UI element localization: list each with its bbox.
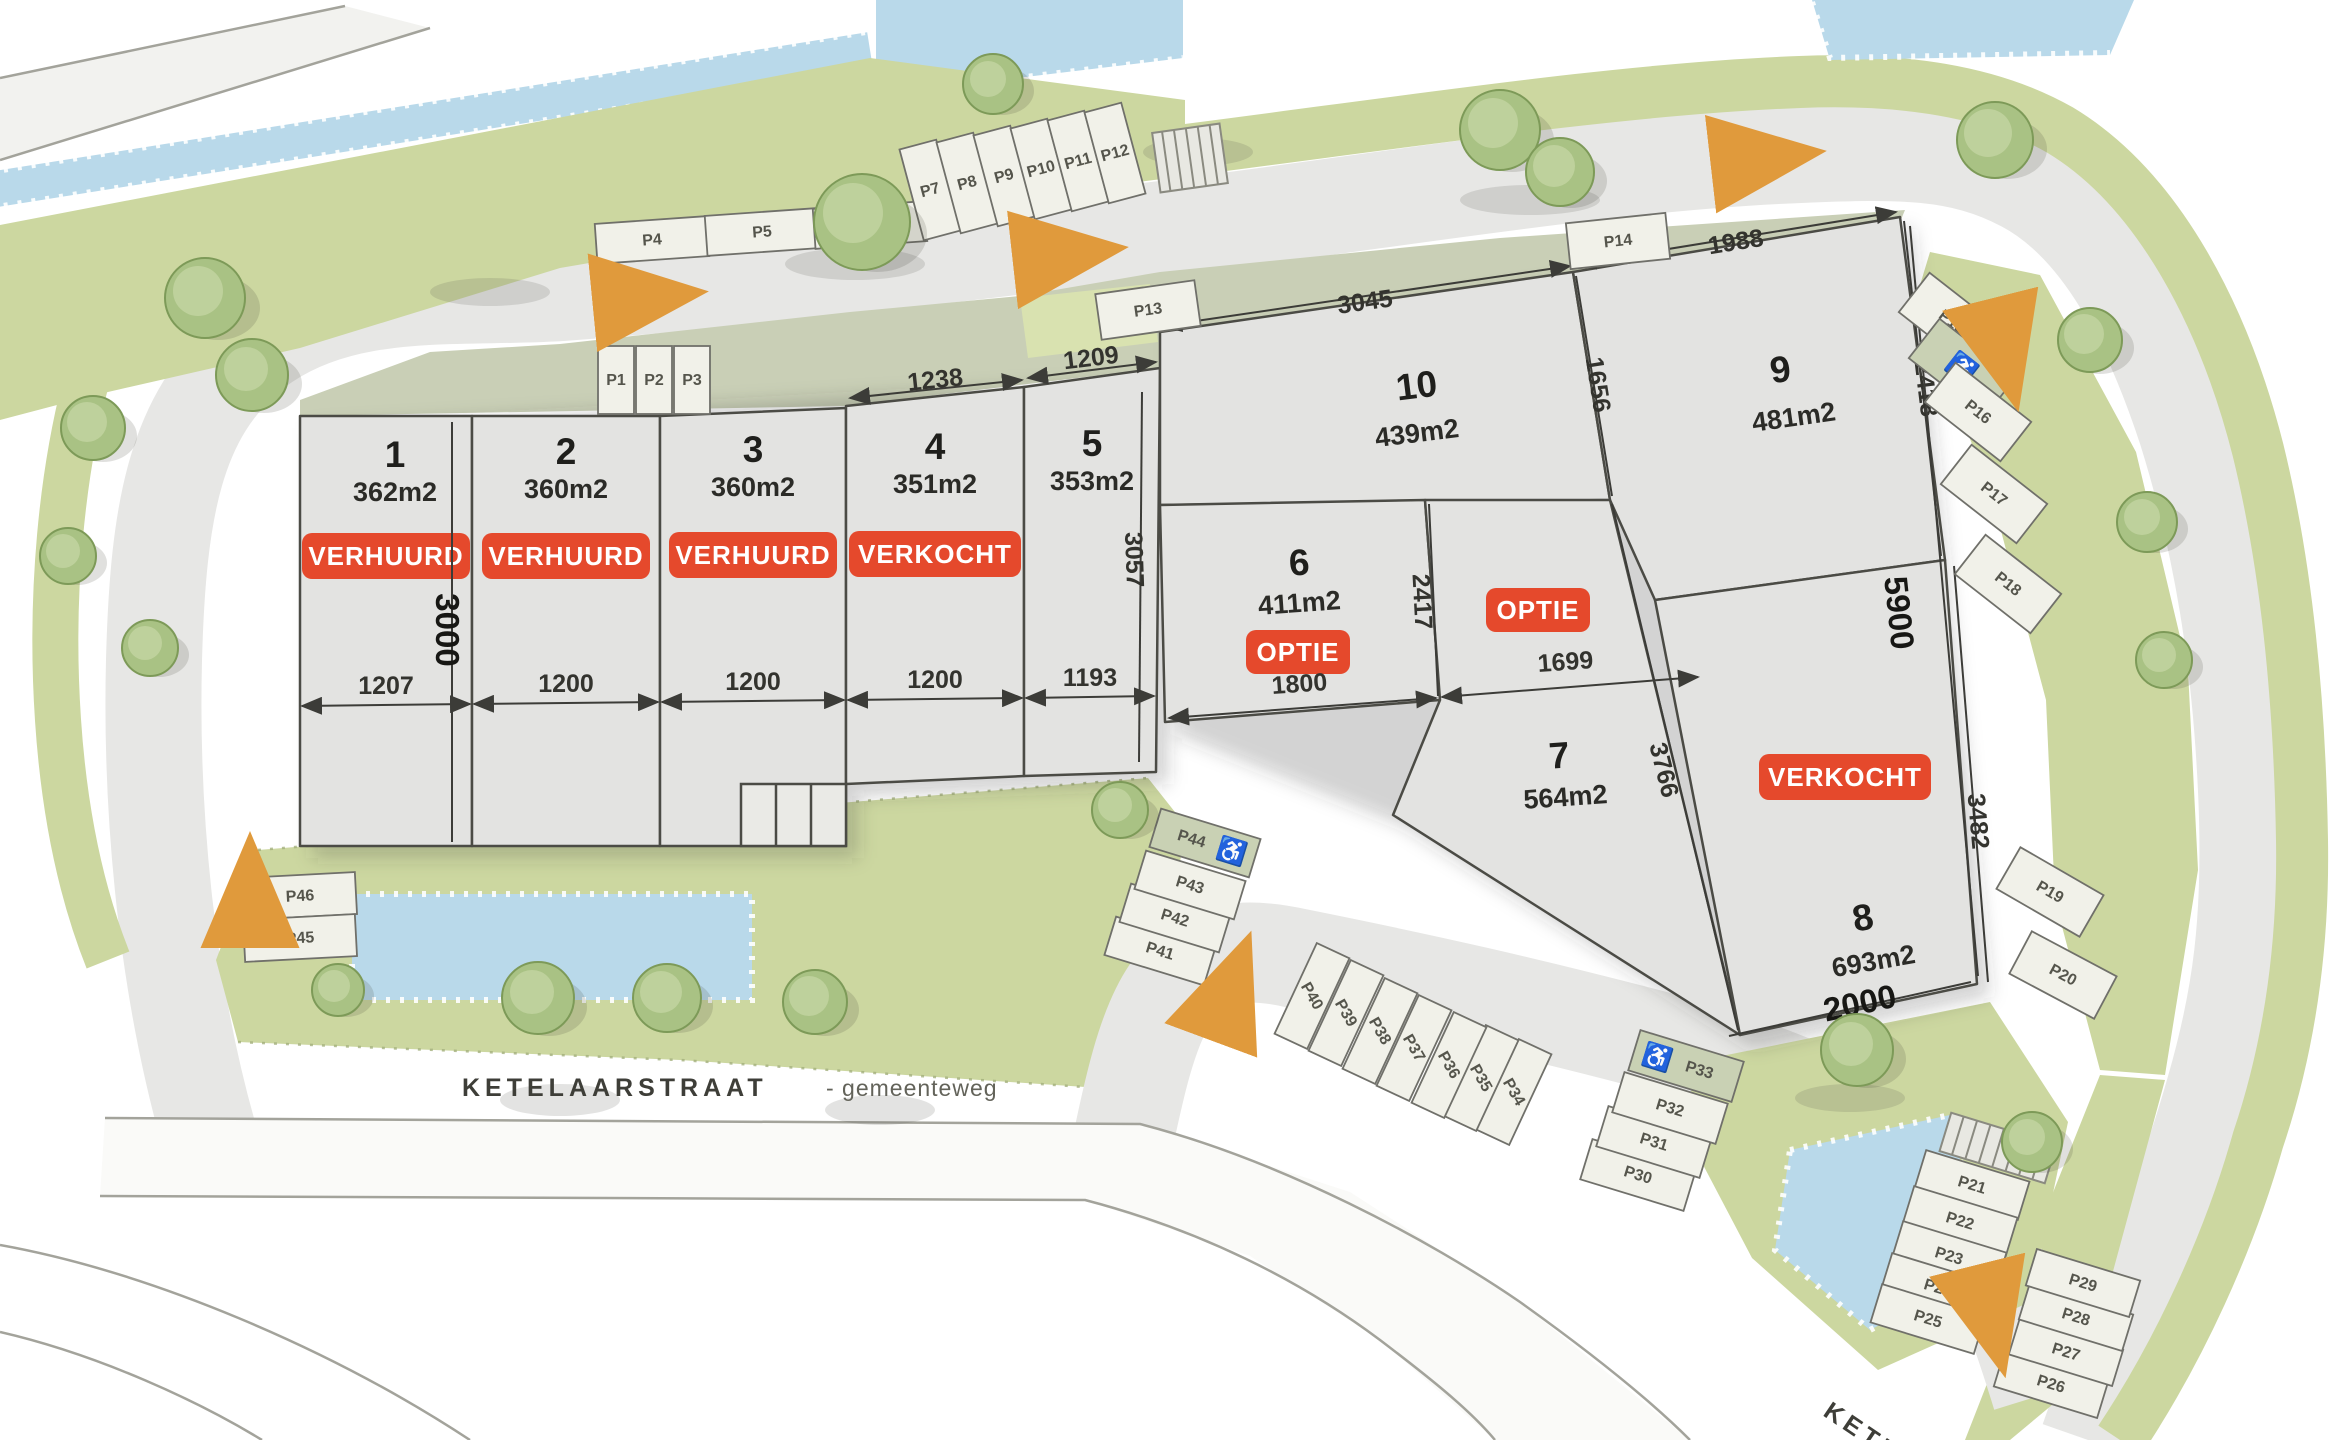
pond-top-right: [1812, 0, 2134, 60]
dim-label: 3057: [1119, 531, 1149, 588]
svg-text:P45: P45: [285, 929, 314, 947]
svg-text:P2: P2: [644, 372, 664, 389]
unit-3[interactable]: 3 360m2 VERHUURD: [660, 408, 846, 846]
unit-area: 411m2: [1257, 585, 1341, 621]
shed-structure: [1152, 124, 1228, 193]
status-badge: OPTIE: [1486, 588, 1590, 632]
dim-label: 5900: [1877, 574, 1921, 651]
dim-label: 1699: [1537, 646, 1594, 678]
parking-stall-p4: P4: [595, 216, 710, 264]
site-plan-canvas: 1 362m2 VERHUURD 2 360m2 VERHUURD 3 360m…: [0, 0, 2348, 1440]
dim-label: 3000: [429, 593, 466, 666]
status-badge: VERKOCHT: [1759, 754, 1931, 800]
unit-area: 353m2: [1050, 466, 1134, 496]
svg-text:10: 10: [1394, 363, 1440, 409]
dim-label: 1200: [538, 670, 594, 698]
svg-text:VERKOCHT: VERKOCHT: [858, 539, 1012, 569]
unit-area: 360m2: [711, 472, 795, 502]
unit-4[interactable]: 4 351m2 VERKOCHT: [846, 387, 1024, 784]
unit-number: 6: [1287, 541, 1310, 583]
status-badge: VERHUURD: [482, 533, 650, 579]
unit-number: 1: [385, 434, 406, 475]
parking-stall-p46: P46: [243, 872, 357, 920]
parking-stall-p14: P14: [1566, 213, 1670, 269]
unit-number: 4: [925, 426, 946, 467]
unit-2[interactable]: 2 360m2 VERHUURD: [472, 416, 660, 846]
svg-text:OPTIE: OPTIE: [1256, 637, 1339, 667]
unit-number: 2: [556, 431, 577, 472]
svg-text:7: 7: [1547, 734, 1570, 776]
unit-area: 362m2: [353, 477, 437, 507]
street-name-suffix: - gemeenteweg: [826, 1075, 998, 1101]
unit-number: 10: [1394, 363, 1440, 409]
status-badge: VERHUURD: [302, 533, 470, 579]
dim-label: 1193: [1063, 664, 1117, 692]
dim-label: 2417: [1407, 573, 1438, 630]
unit-number: 7: [1547, 734, 1570, 776]
svg-text:P3: P3: [682, 372, 702, 389]
parking-stall-p1: P1: [598, 346, 634, 414]
svg-text:411m2: 411m2: [1257, 585, 1341, 621]
svg-text:6: 6: [1287, 541, 1310, 583]
status-badge: VERHUURD: [669, 532, 837, 578]
unit-number: 5: [1082, 423, 1103, 464]
unit-area: 351m2: [893, 469, 977, 499]
svg-text:P46: P46: [285, 887, 314, 905]
svg-text:P5: P5: [752, 223, 773, 241]
storage-cells: [741, 784, 846, 846]
dim-label: 1200: [725, 668, 781, 696]
svg-text:VERKOCHT: VERKOCHT: [1768, 762, 1922, 792]
svg-text:P14: P14: [1603, 232, 1633, 252]
dim-label: 1200: [907, 666, 963, 694]
shadow-smudge: [430, 278, 550, 306]
status-badge: VERKOCHT: [849, 531, 1021, 577]
unit-number: 3: [743, 429, 764, 470]
svg-text:VERHUURD: VERHUURD: [308, 541, 463, 571]
parking-stall-p3: P3: [674, 346, 710, 414]
street-name: KETELAARSTRAAT: [462, 1074, 768, 1102]
svg-text:P1: P1: [606, 372, 626, 389]
svg-text:VERHUURD: VERHUURD: [675, 540, 830, 570]
parking-stall-p2: P2: [636, 346, 672, 414]
dim-label: 1207: [358, 672, 414, 700]
svg-text:P4: P4: [642, 231, 663, 249]
svg-text:VERHUURD: VERHUURD: [488, 541, 643, 571]
parking-stall-p5: P5: [705, 208, 820, 256]
svg-text:OPTIE: OPTIE: [1496, 595, 1579, 625]
unit-area: 564m2: [1522, 779, 1608, 815]
site-plan: 1 362m2 VERHUURD 2 360m2 VERHUURD 3 360m…: [0, 0, 2348, 1440]
unit-area: 360m2: [524, 474, 608, 504]
dim-label: 1800: [1271, 668, 1328, 700]
shadow-smudge: [1795, 1084, 1905, 1112]
dim-label: 1238: [906, 363, 964, 397]
dim-label: 3482: [1962, 792, 1995, 850]
status-badge: OPTIE: [1246, 630, 1350, 674]
unit-9[interactable]: 9 481m2: [1573, 217, 1945, 600]
svg-text:564m2: 564m2: [1522, 779, 1608, 815]
parking-stall-p45: P45: [243, 914, 357, 962]
